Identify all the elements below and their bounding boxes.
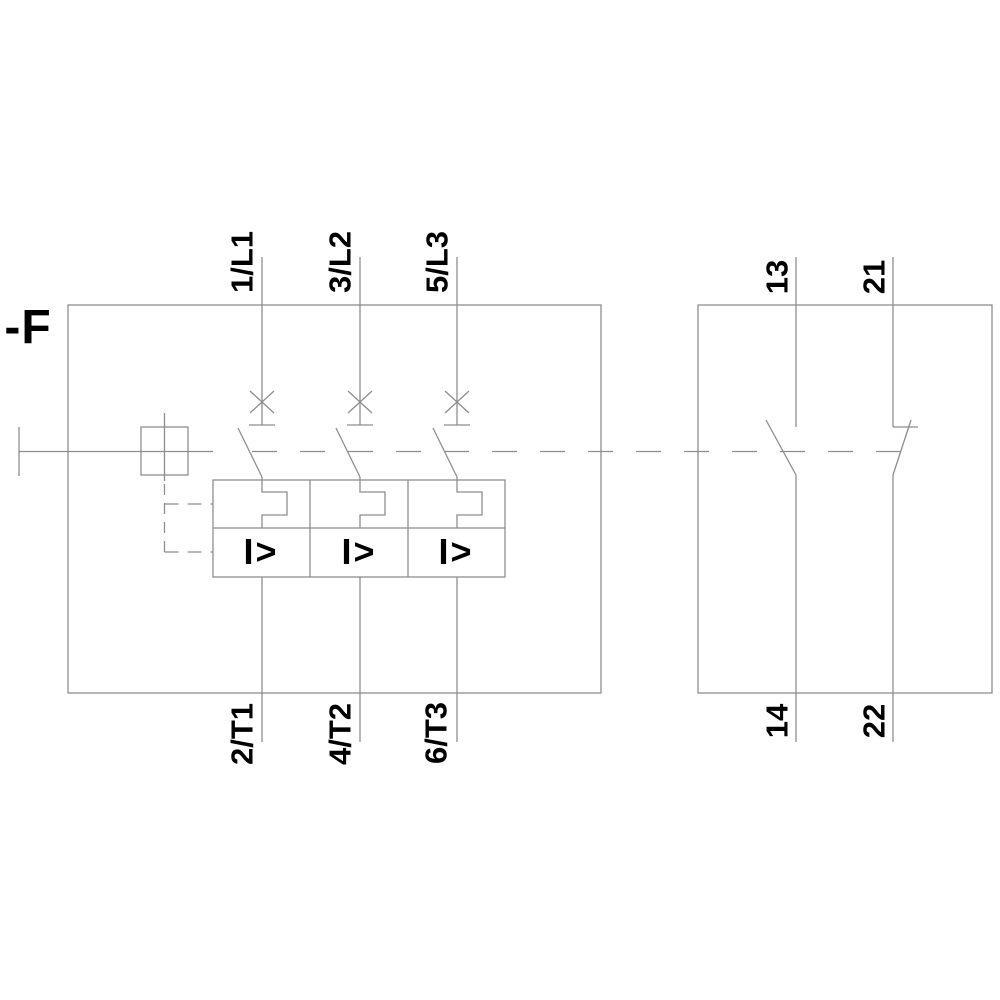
pole1-thermal-element xyxy=(262,477,287,528)
terminal-label-21: 21 xyxy=(859,260,890,294)
rotary-operator-symbol xyxy=(19,413,213,552)
terminal-label-22: 22 xyxy=(859,704,890,738)
linework-group xyxy=(19,257,992,742)
terminal-label-14: 14 xyxy=(762,704,793,738)
aux-contact-enclosure-outline xyxy=(698,305,992,693)
circuit-diagram: -F 1/L1 3/L2 5/L3 13 21 2/T1 4/T2 6/T3 1… xyxy=(0,0,1000,1000)
terminal-label-1L1: 1/L1 xyxy=(227,231,258,293)
terminal-label-5L3: 5/L3 xyxy=(422,231,453,293)
device-designation-label: -F xyxy=(4,304,51,352)
pole2-contact-blade xyxy=(336,428,360,477)
pole1-contact-blade xyxy=(238,428,262,477)
terminal-label-2T1: 2/T1 xyxy=(227,703,258,765)
terminal-label-4T2: 4/T2 xyxy=(325,703,356,765)
schematic-linework xyxy=(0,0,1000,1000)
pole2-thermal-element xyxy=(360,477,385,528)
terminal-label-6T3: 6/T3 xyxy=(421,702,452,764)
terminal-label-3L2: 3/L2 xyxy=(325,231,356,293)
aux-nc-contact-21-22 xyxy=(893,257,918,742)
main-pole-3 xyxy=(433,257,482,742)
breaker-enclosure-outline xyxy=(68,305,601,693)
overcurrent-trip-symbol-pole1: I> xyxy=(243,534,278,570)
main-pole-1 xyxy=(238,257,287,742)
pole3-contact-blade xyxy=(433,428,457,477)
pole3-thermal-element xyxy=(457,477,482,528)
overcurrent-trip-symbol-pole2: I> xyxy=(341,534,376,570)
main-pole-2 xyxy=(336,257,385,742)
aux-nc-contact-blade xyxy=(893,420,911,475)
overcurrent-trip-symbol-pole3: I> xyxy=(438,534,473,570)
aux-no-contact-blade xyxy=(766,420,796,475)
aux-no-contact-13-14 xyxy=(766,257,796,742)
terminal-label-13: 13 xyxy=(762,260,793,294)
